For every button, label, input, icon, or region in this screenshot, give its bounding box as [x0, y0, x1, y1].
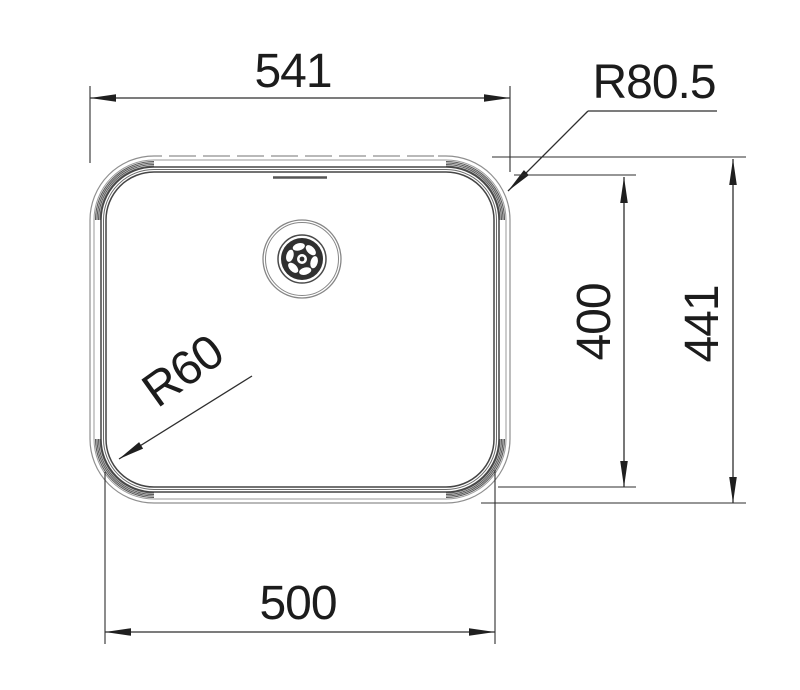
drawing-page: 541 R80.5 400 441 500 R60 [0, 0, 800, 690]
rim-outer-edge [90, 156, 510, 503]
drain-center-pin [300, 257, 305, 262]
dim-label-outer-corner-radius: R80.5 [592, 56, 715, 109]
dim-label-top-width: 541 [254, 45, 331, 98]
corner-transition-arcs [96, 162, 505, 498]
dim-label-outer-height: 441 [676, 285, 729, 362]
dim-outer-corner-radius: R80.5 [508, 56, 717, 191]
sink-outline [90, 156, 510, 503]
dim-label-bottom-width: 500 [259, 577, 336, 630]
technical-drawing: 541 R80.5 400 441 500 R60 [0, 0, 800, 690]
bowl-edge-outer [101, 167, 499, 492]
rim-inner-edge [94, 160, 506, 499]
bowl-edge-inner [106, 172, 494, 487]
drain [263, 220, 341, 298]
dim-bottom-width: 500 [105, 470, 495, 644]
dim-label-inner-height: 400 [568, 283, 621, 360]
dim-inner-corner-radius: R60 [119, 325, 252, 459]
dim-top-width: 541 [90, 45, 510, 172]
bowl-edge-mid [104, 170, 497, 490]
dim-inner-height: 400 [498, 175, 636, 487]
dim-label-inner-corner-radius: R60 [133, 325, 233, 418]
